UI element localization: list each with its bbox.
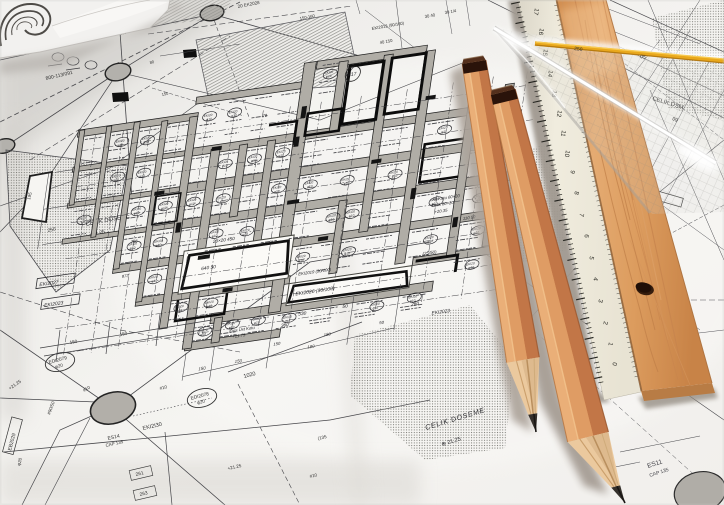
svg-text:05: 05 <box>640 54 647 61</box>
svg-text:250: 250 <box>574 46 583 53</box>
